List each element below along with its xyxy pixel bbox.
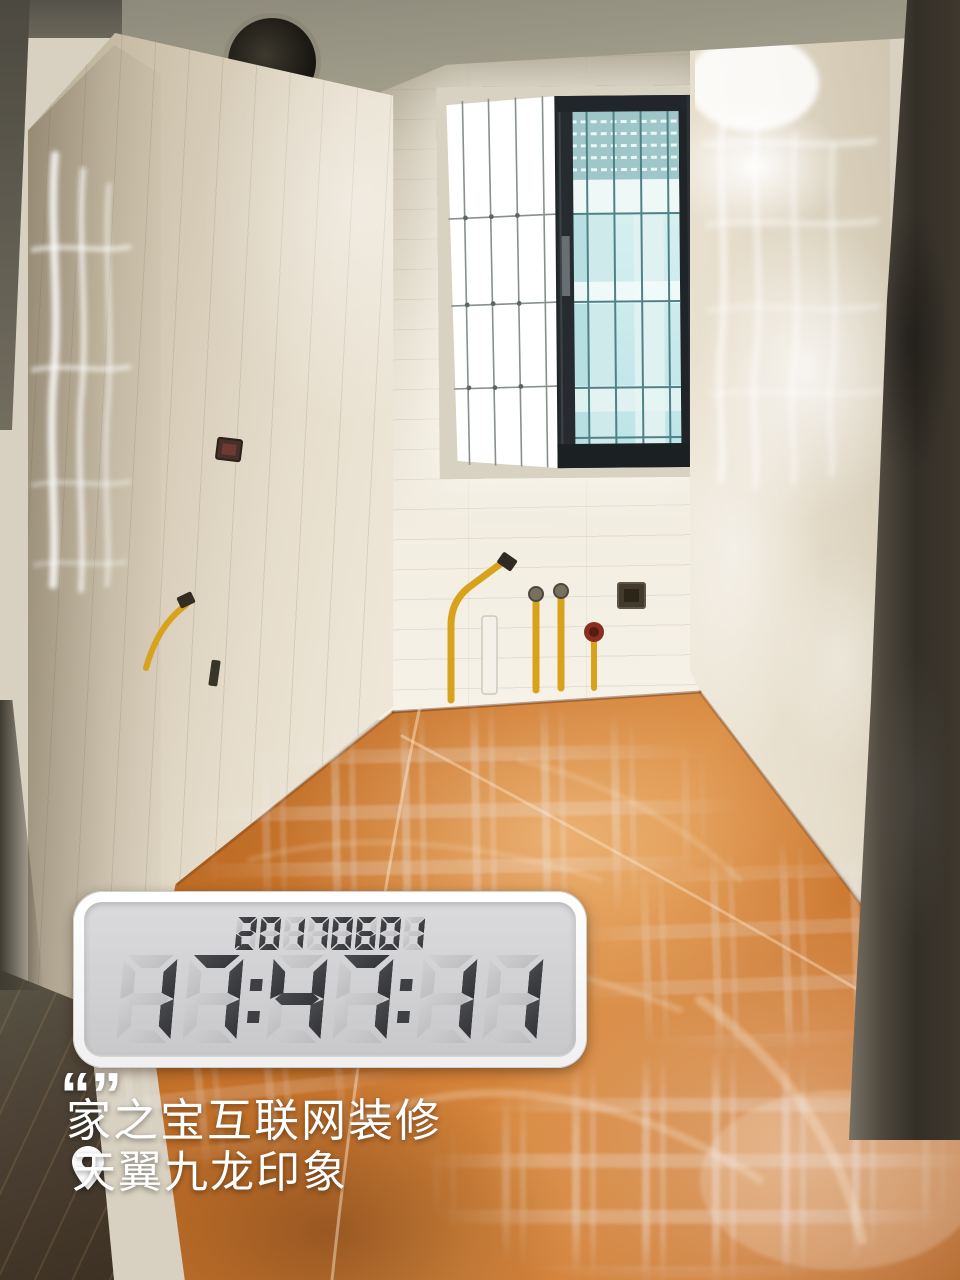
left-edge-shadow	[0, 0, 30, 430]
clock-lcd-panel	[84, 902, 576, 1057]
location-text: 天翼九龙印象	[72, 1136, 348, 1200]
left-pillar-shading	[20, 25, 180, 1020]
window-graphic	[436, 85, 701, 479]
location-watermark: 天翼九龙印象	[72, 1146, 104, 1190]
window	[436, 85, 701, 479]
brand-watermark: “ 家之宝互联网装修 ”	[60, 1076, 122, 1132]
timestamp-clock	[73, 891, 587, 1068]
close-quote-icon: ”	[91, 1068, 122, 1124]
photo-canvas: “ 家之宝互联网装修 ” 天翼九龙印象	[0, 0, 960, 1280]
clock-date-display	[233, 917, 428, 950]
clock-time-display	[110, 955, 550, 1043]
